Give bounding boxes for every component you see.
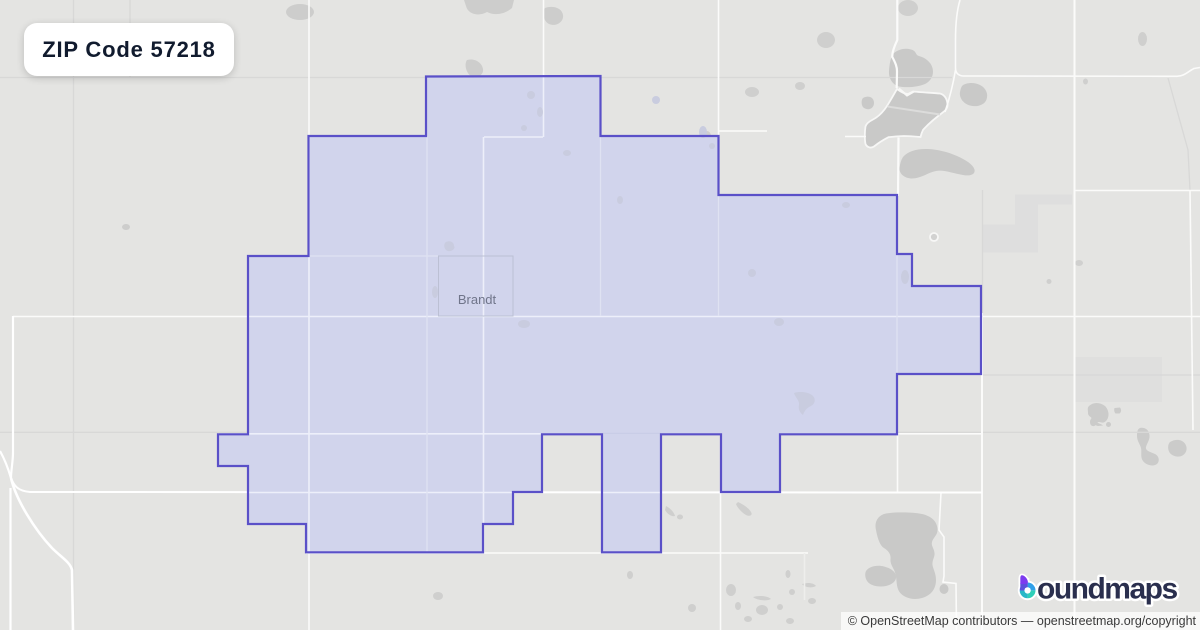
- svg-text:oundmaps: oundmaps: [1037, 573, 1177, 606]
- svg-text:Brandt: Brandt: [458, 292, 497, 307]
